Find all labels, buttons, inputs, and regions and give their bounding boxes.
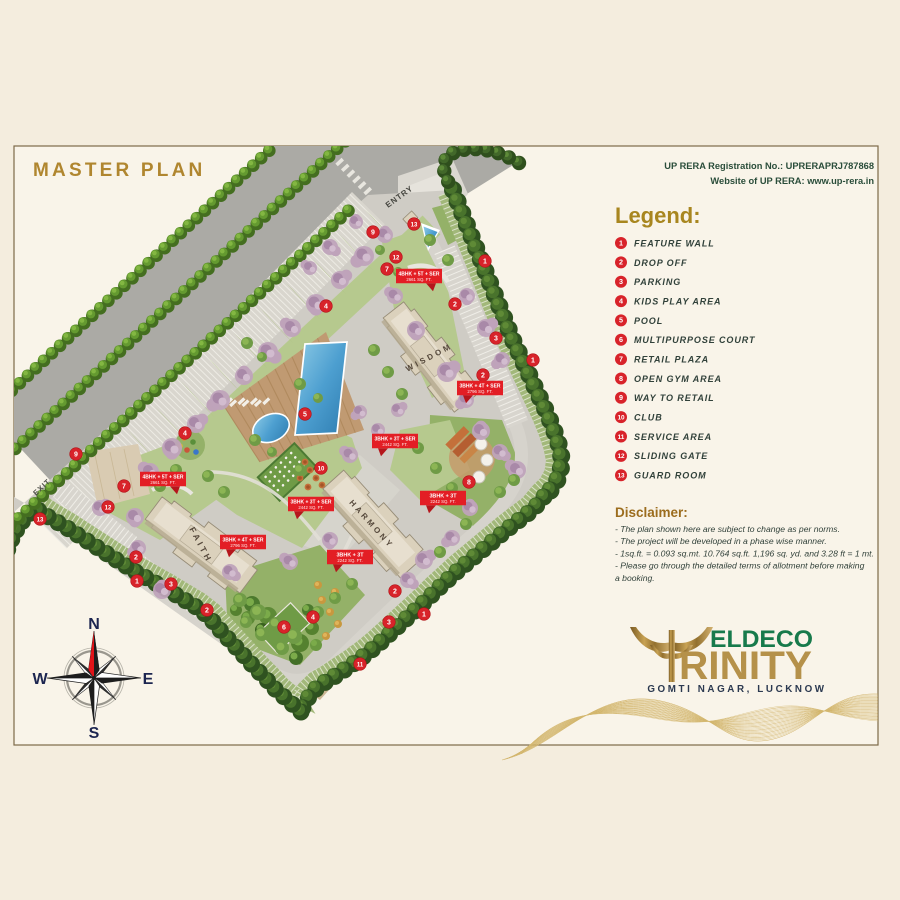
svg-text:6: 6 [282,624,286,631]
svg-text:- The plan shown here are subj: - The plan shown here are subject to cha… [615,524,840,534]
svg-text:4: 4 [183,430,187,437]
svg-text:N: N [88,616,100,633]
svg-text:12: 12 [105,505,112,511]
svg-text:13: 13 [37,517,44,523]
svg-text:4: 4 [619,296,623,305]
svg-text:1: 1 [135,578,139,585]
svg-text:13: 13 [411,222,418,228]
svg-text:MULTIPURPOSE COURT: MULTIPURPOSE COURT [634,335,756,345]
svg-text:2661 SQ. FT.: 2661 SQ. FT. [406,277,431,282]
svg-text:2661 SQ. FT.: 2661 SQ. FT. [150,480,175,485]
svg-text:11: 11 [618,434,625,441]
svg-text:3: 3 [619,277,623,286]
svg-text:Disclaimer:: Disclaimer: [615,505,688,520]
svg-text:Website of UP RERA: www.up-rer: Website of UP RERA: www.up-rera.in [710,176,874,186]
svg-text:WAY TO RETAIL: WAY TO RETAIL [634,393,715,403]
svg-text:7: 7 [619,354,623,363]
svg-text:1: 1 [619,238,623,247]
svg-text:UP RERA Registration No.: UPRE: UP RERA Registration No.: UPRERAPRJ78786… [664,161,874,171]
svg-text:11: 11 [357,662,364,668]
svg-text:MASTER PLAN: MASTER PLAN [33,160,205,181]
svg-text:CLUB: CLUB [634,413,663,423]
svg-text:2242 SQ. FT.: 2242 SQ. FT. [430,499,455,504]
svg-text:2: 2 [481,372,485,379]
svg-text:13: 13 [617,473,625,480]
svg-text:3: 3 [169,581,173,588]
svg-text:RETAIL PLAZA: RETAIL PLAZA [634,355,709,365]
svg-text:3: 3 [387,619,391,626]
svg-text:GOMTI NAGAR, LUCKNOW: GOMTI NAGAR, LUCKNOW [647,684,826,695]
svg-text:2796 SQ. FT.: 2796 SQ. FT. [230,543,255,548]
svg-text:SLIDING GATE: SLIDING GATE [634,451,708,461]
svg-text:2: 2 [393,588,397,595]
svg-text:GUARD ROOM: GUARD ROOM [634,471,707,481]
svg-text:PARKING: PARKING [634,277,681,287]
svg-text:10: 10 [318,466,325,472]
svg-text:10: 10 [617,414,625,421]
svg-text:9: 9 [619,393,623,402]
svg-text:5: 5 [619,316,623,325]
svg-text:2: 2 [619,258,623,267]
svg-text:2: 2 [134,554,138,561]
svg-text:2: 2 [205,607,209,614]
svg-text:2442 SQ. FT.: 2442 SQ. FT. [298,505,323,510]
svg-text:- The project will be develope: - The project will be developed in a pha… [615,536,827,546]
svg-text:E: E [143,671,154,688]
svg-text:4: 4 [311,614,315,621]
svg-text:7: 7 [122,483,126,490]
svg-text:12: 12 [393,255,400,261]
svg-text:a booking.: a booking. [615,573,655,583]
svg-text:Legend:: Legend: [615,203,701,228]
svg-text:S: S [89,725,100,742]
svg-text:9: 9 [371,229,375,236]
svg-text:8: 8 [619,374,623,383]
svg-text:DROP OFF: DROP OFF [634,258,687,268]
svg-text:5: 5 [303,411,307,418]
svg-text:2442 SQ. FT.: 2442 SQ. FT. [382,442,407,447]
svg-text:2796 SQ. FT.: 2796 SQ. FT. [467,389,492,394]
svg-text:3: 3 [494,335,498,342]
svg-text:4: 4 [324,303,328,310]
svg-text:RINITY: RINITY [679,644,812,688]
svg-text:POOL: POOL [634,316,663,326]
svg-text:FEATURE WALL: FEATURE WALL [634,238,715,248]
svg-text:W: W [32,671,48,688]
svg-text:- Please go through the detail: - Please go through the detailed terms o… [615,561,865,571]
svg-text:9: 9 [74,451,78,458]
svg-text:KIDS PLAY AREA: KIDS PLAY AREA [634,296,721,306]
svg-text:2242 SQ. FT.: 2242 SQ. FT. [337,558,362,563]
svg-text:1: 1 [422,611,426,618]
svg-text:1: 1 [531,357,535,364]
svg-text:2: 2 [453,301,457,308]
svg-text:12: 12 [617,453,625,460]
svg-text:SERVICE AREA: SERVICE AREA [634,432,712,442]
svg-text:- 1sq.ft. = 0.093 sq.mt. 10.76: - 1sq.ft. = 0.093 sq.mt. 10.764 sq.ft. 1… [615,548,874,558]
svg-text:8: 8 [467,479,471,486]
svg-text:1: 1 [483,258,487,265]
svg-text:OPEN GYM AREA: OPEN GYM AREA [634,374,722,384]
svg-text:7: 7 [385,266,389,273]
svg-text:6: 6 [619,335,623,344]
